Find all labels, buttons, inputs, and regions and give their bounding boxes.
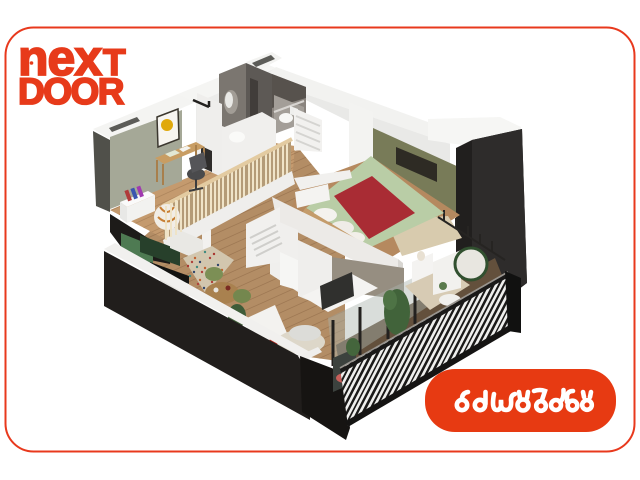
svg-text:DOOR: DOOR <box>18 71 124 112</box>
